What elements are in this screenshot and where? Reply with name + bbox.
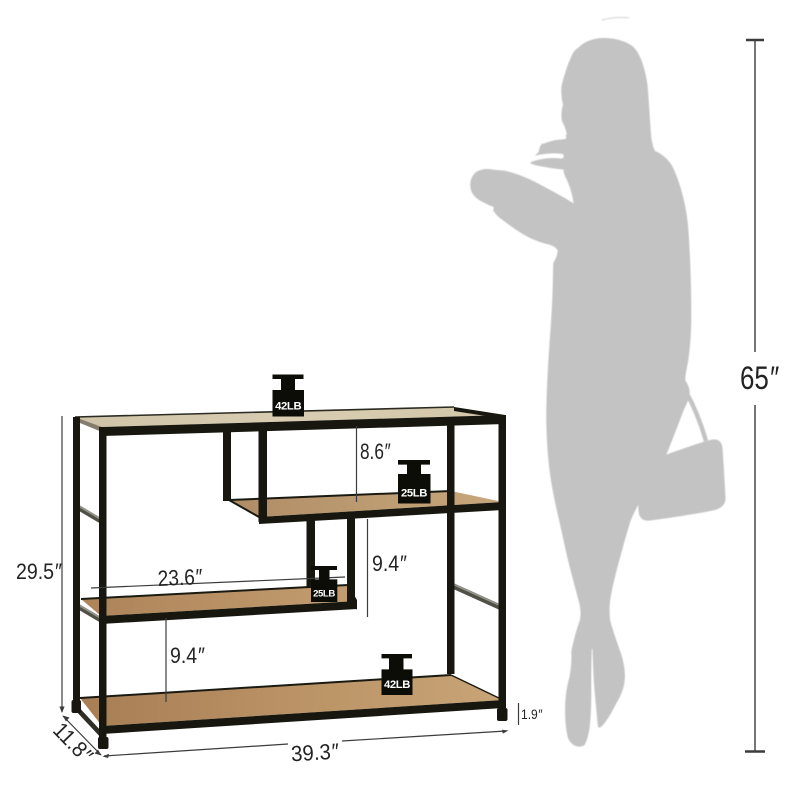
svg-text:25LB: 25LB xyxy=(401,488,427,500)
svg-text:8.6″: 8.6″ xyxy=(360,439,391,464)
svg-text:42LB: 42LB xyxy=(384,679,410,691)
svg-text:1.9″: 1.9″ xyxy=(521,706,543,722)
svg-text:29.5″: 29.5″ xyxy=(16,559,62,584)
svg-text:23.6″: 23.6″ xyxy=(157,564,203,591)
svg-text:9.4″: 9.4″ xyxy=(170,643,205,668)
svg-text:9.4″: 9.4″ xyxy=(372,551,407,576)
svg-text:42LB: 42LB xyxy=(275,401,301,413)
svg-text:39.3″: 39.3″ xyxy=(290,739,340,767)
svg-text:25LB: 25LB xyxy=(313,589,335,600)
svg-text:65″: 65″ xyxy=(740,360,779,396)
